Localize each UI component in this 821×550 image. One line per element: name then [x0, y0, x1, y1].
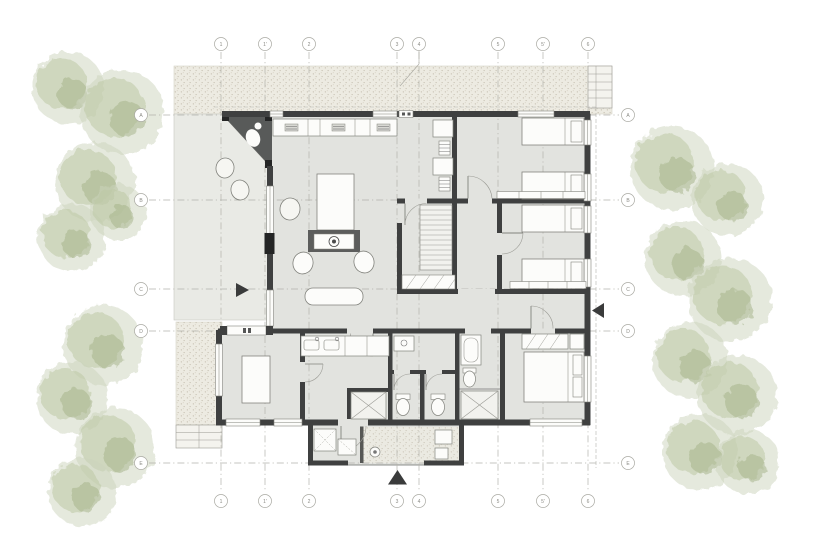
floor-plan-page: 11'23455'611'23455'6ABCDEABCDE: [0, 0, 821, 550]
pillow: [573, 377, 582, 397]
sw-bed: [242, 356, 270, 403]
wall-porch-front: [424, 461, 464, 466]
grid-bubble: 1: [215, 495, 228, 508]
wardrobe: [570, 334, 584, 349]
corridor-opening: [458, 289, 495, 294]
gravel-southwest: [176, 322, 222, 425]
svg-text:2: 2: [308, 42, 311, 48]
pillow: [573, 355, 582, 375]
grid-bubble: 5': [537, 38, 550, 51]
door-opening: [426, 370, 442, 374]
hall-closet: [433, 120, 453, 137]
svg-text:1: 1: [220, 42, 223, 48]
grid-bubble: 1': [259, 495, 272, 508]
door-opening: [405, 199, 427, 204]
tree: [692, 164, 764, 236]
wall-bath-3: [455, 333, 460, 425]
floor-plan-canvas: 11'23455'611'23455'6ABCDEABCDE: [0, 0, 821, 550]
door-opening: [394, 370, 410, 374]
wall-master-west: [500, 333, 505, 425]
pillow: [571, 208, 582, 229]
svg-text:6: 6: [587, 42, 590, 48]
door-opening: [338, 419, 368, 427]
door-opening: [531, 329, 555, 334]
grid-bubble: 2: [303, 495, 316, 508]
svg-text:4: 4: [418, 499, 421, 505]
svg-text:D: D: [139, 329, 143, 335]
cooktop: [285, 124, 298, 131]
toilet-bowl: [432, 399, 445, 416]
openings: [248, 328, 251, 333]
wall-porch-front: [308, 461, 348, 466]
door-opening: [300, 362, 305, 382]
grid-bubble: 6: [582, 495, 595, 508]
grid-bubble: 5': [537, 495, 550, 508]
svg-text:1: 1: [220, 499, 223, 505]
tree: [716, 430, 780, 494]
dining-table: [317, 174, 354, 230]
wall-bath-2: [420, 370, 425, 420]
furniture: [332, 240, 336, 244]
svg-text:D: D: [626, 329, 630, 335]
tree: [90, 184, 146, 240]
cooktop: [332, 124, 345, 131]
wall-marker: [399, 111, 413, 118]
door-opening: [465, 329, 491, 334]
wardrobe: [522, 334, 568, 349]
wall-porch-left: [308, 425, 313, 465]
svg-text:2: 2: [308, 499, 311, 505]
steps-northeast: [588, 66, 612, 108]
door-opening: [497, 233, 502, 255]
grid-bubble: C: [622, 283, 635, 296]
svg-text:C: C: [626, 287, 630, 293]
grid-bubble: A: [135, 109, 148, 122]
wall-porch-right: [459, 425, 464, 465]
grid-bubble: 3: [391, 38, 404, 51]
grid-bubble: A: [622, 109, 635, 122]
plan-layers: 11'23455'611'23455'6ABCDEABCDE: [32, 38, 780, 527]
svg-text:5': 5': [541, 499, 545, 505]
tree: [80, 70, 164, 154]
toilet-bowl: [397, 399, 410, 416]
grid-bubble: 4: [413, 495, 426, 508]
svg-text:3: 3: [396, 42, 399, 48]
grid-bubble: D: [622, 325, 635, 338]
grid-bubble: 3: [391, 495, 404, 508]
porch-bench: [435, 430, 452, 444]
pillow: [571, 262, 582, 283]
furniture: [373, 450, 377, 454]
svg-text:C: C: [139, 287, 143, 293]
openings: [266, 326, 273, 335]
svg-text:5: 5: [497, 499, 500, 505]
tree: [48, 458, 116, 526]
vanity: [394, 336, 414, 351]
pillow: [571, 121, 582, 142]
svg-text:4: 4: [418, 42, 421, 48]
svg-text:1': 1': [263, 499, 267, 505]
porch-bench: [435, 448, 448, 459]
wall-shower-stall: [347, 388, 388, 392]
svg-text:5: 5: [497, 42, 500, 48]
svg-text:1': 1': [263, 42, 267, 48]
openings: [402, 113, 405, 116]
hall-closet: [433, 158, 453, 175]
grid-bubble: B: [622, 194, 635, 207]
grid-bubble: 2: [303, 38, 316, 51]
coffee-table: [305, 288, 363, 305]
openings: [408, 113, 411, 116]
wall-laundry: [360, 425, 364, 463]
wall-pier: [265, 233, 275, 254]
entry-arrow: [388, 470, 407, 485]
grid-bubble: C: [135, 283, 148, 296]
grid-bubble: 1: [215, 38, 228, 51]
svg-text:6: 6: [587, 499, 590, 505]
grid-bubble: B: [135, 194, 148, 207]
openings: [243, 328, 246, 333]
grid-bubble: D: [135, 325, 148, 338]
cooktop: [377, 124, 390, 131]
corner-dot: [255, 123, 262, 130]
svg-text:5': 5': [541, 42, 545, 48]
grid-bubble: 5: [492, 38, 505, 51]
svg-text:3: 3: [396, 499, 399, 505]
openings: [220, 326, 227, 335]
door-opening: [468, 199, 492, 204]
grid-bubble: 1': [259, 38, 272, 51]
grid-bubble: 5: [492, 495, 505, 508]
grid-bubble: E: [135, 457, 148, 470]
wall-shower-stall: [347, 388, 351, 420]
window-box: [227, 326, 266, 335]
grid-bubble: 4: [413, 38, 426, 51]
wall-pantry-west: [397, 223, 402, 294]
toilet-bowl: [464, 371, 476, 387]
section-arrow-east: [592, 303, 604, 318]
door-opening: [347, 329, 373, 334]
grid-bubble: E: [622, 457, 635, 470]
grid-bubble: 6: [582, 38, 595, 51]
